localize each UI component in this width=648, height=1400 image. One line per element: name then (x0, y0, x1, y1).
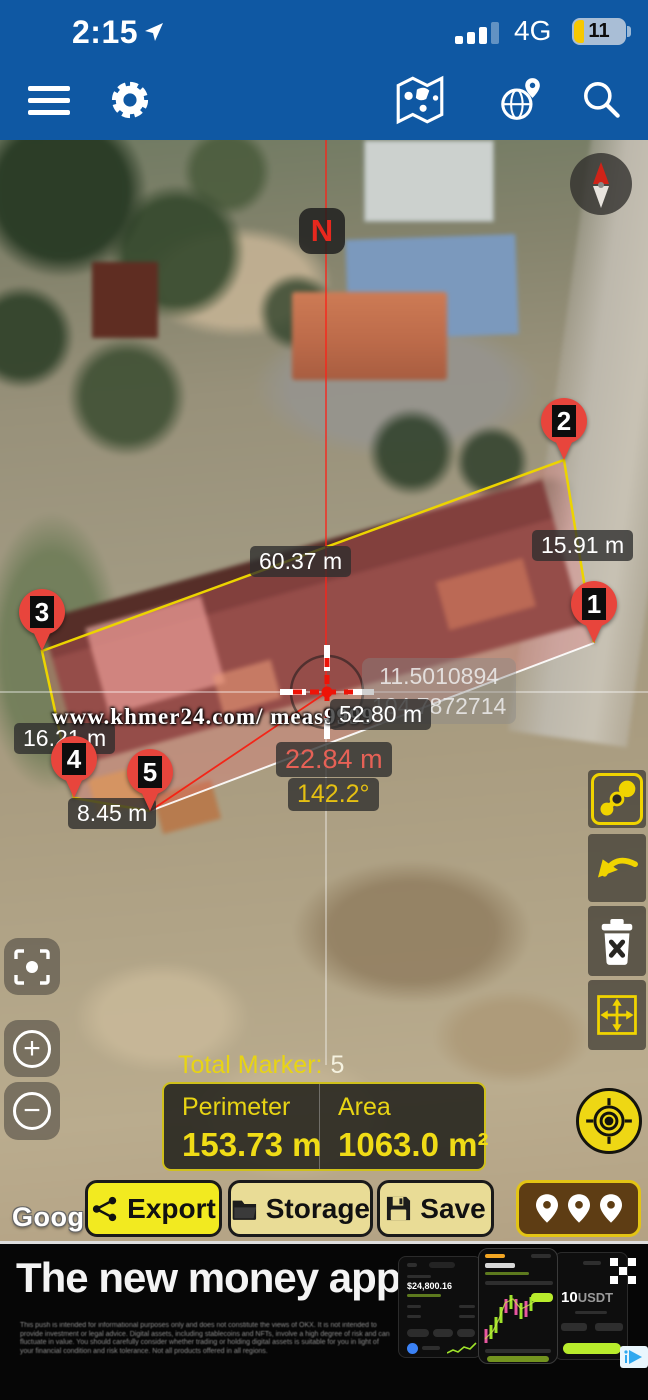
zoom-out-button[interactable]: − (4, 1082, 60, 1140)
area-label: Area (338, 1093, 488, 1122)
total-marker-row: Total Marker:5 (178, 1051, 344, 1080)
marker-number: 4 (62, 743, 86, 775)
compass[interactable] (570, 153, 632, 215)
marker-number: 3 (30, 596, 54, 628)
map-marker-3[interactable]: 3 (19, 589, 65, 653)
gear-icon (107, 77, 153, 123)
perimeter-label: Perimeter (182, 1093, 319, 1122)
watermark: www.khmer24.com/ meas9999 (52, 704, 374, 730)
folder-icon (231, 1196, 258, 1222)
edge-label-1-2: 15.91 m (532, 530, 633, 561)
storage-button[interactable]: Storage (228, 1180, 373, 1237)
area-value: 1063.0 m² (338, 1126, 488, 1164)
pin-icon (568, 1194, 590, 1223)
ad-balance: $24,800.16 (407, 1281, 452, 1291)
battery-cap (627, 26, 631, 37)
map-marker-2[interactable]: 2 (541, 398, 587, 462)
gps-latitude: 11.5010894 (372, 661, 506, 691)
map-marker-1[interactable]: 1 (571, 581, 617, 645)
ad-buy-button (531, 1293, 553, 1302)
total-marker-count: 5 (330, 1051, 344, 1079)
markers-list-button[interactable] (516, 1180, 641, 1237)
status-time: 2:15 (72, 14, 138, 51)
ad-coin-icon (407, 1343, 418, 1354)
center-target-button[interactable] (4, 938, 60, 995)
globe-location-button[interactable] (492, 72, 548, 128)
plus-icon: + (13, 1030, 51, 1068)
ad-phone-wallet: $24,800.16 (398, 1256, 482, 1358)
share-icon (91, 1195, 119, 1223)
status-bar: 2:15 4G 11 (0, 0, 648, 60)
active-tool-border (591, 773, 643, 825)
pin-icon (600, 1194, 622, 1223)
save-button[interactable]: Save (377, 1180, 494, 1237)
battery-percent: 11 (572, 18, 626, 45)
area-block: Area 1063.0 m² (320, 1084, 488, 1169)
ad-cta-button (563, 1343, 621, 1354)
focus-frame-icon (12, 947, 52, 987)
results-panel: Perimeter 153.73 m Area 1063.0 m² (162, 1082, 486, 1171)
zoom-in-button[interactable]: + (4, 1020, 60, 1077)
network-type: 4G (514, 15, 551, 47)
undo-icon (594, 848, 640, 888)
app-header: 2:15 4G 11 (0, 0, 648, 140)
north-badge: N (299, 208, 345, 254)
cellular-signal-icon (455, 20, 501, 44)
adchoices-icon[interactable] (620, 1346, 648, 1373)
edge-label-5-1: 52.80 m (330, 699, 431, 730)
app-screen: 2:15 4G 11 (0, 0, 648, 1400)
perimeter-block: Perimeter 153.73 m (164, 1084, 320, 1169)
location-services-icon (142, 20, 166, 49)
measure-tool-button[interactable] (588, 770, 646, 828)
minus-icon: − (13, 1092, 51, 1130)
export-button[interactable]: Export (85, 1180, 222, 1237)
save-icon (385, 1195, 412, 1222)
okx-logo-icon (610, 1258, 636, 1284)
ad-amount: 10USDT (561, 1289, 613, 1306)
expand-icon (593, 991, 641, 1039)
delete-button[interactable] (588, 906, 646, 976)
gps-target-icon (580, 1092, 638, 1150)
ad-headline: The new money app. (16, 1254, 411, 1302)
battery-icon: 11 (572, 18, 626, 45)
undo-button[interactable] (588, 834, 646, 902)
search-button[interactable] (574, 72, 630, 128)
trash-icon (596, 917, 638, 965)
export-label: Export (127, 1193, 216, 1225)
storage-label: Storage (266, 1193, 370, 1225)
marker-number: 2 (552, 405, 576, 437)
save-label: Save (420, 1193, 485, 1225)
perimeter-value: 153.73 m (182, 1126, 319, 1164)
expand-button[interactable] (588, 980, 646, 1050)
map-marker-5[interactable]: 5 (127, 749, 173, 813)
gps-bearing-label: 142.2° (288, 778, 379, 811)
satellite-map[interactable]: N 60.37 m 15.91 m 16.21 m 8.45 m 52.80 m… (0, 140, 648, 1244)
marker-number: 1 (582, 588, 606, 620)
globe-pin-icon (497, 76, 543, 124)
ad-phone-chart (478, 1248, 558, 1364)
ad-sparkline (447, 1341, 477, 1355)
ad-banner[interactable]: The new money app. This push is intended… (0, 1244, 648, 1400)
pin-icon (536, 1194, 558, 1223)
map-type-button[interactable] (392, 72, 448, 128)
my-location-button[interactable] (576, 1088, 642, 1154)
compass-needle-icon (570, 153, 632, 215)
map-icon (392, 73, 448, 127)
total-marker-label: Total Marker: (178, 1051, 322, 1079)
menu-button[interactable] (28, 86, 70, 116)
map-marker-4[interactable]: 4 (51, 736, 97, 800)
settings-button[interactable] (102, 72, 158, 128)
ad-disclaimer: This push is intended for informational … (20, 1322, 392, 1356)
toolbar (0, 60, 648, 140)
marker-number: 5 (138, 756, 162, 788)
search-icon (579, 77, 625, 123)
gps-distance-label: 22.84 m (276, 742, 392, 777)
edge-label-2-3: 60.37 m (250, 546, 351, 577)
